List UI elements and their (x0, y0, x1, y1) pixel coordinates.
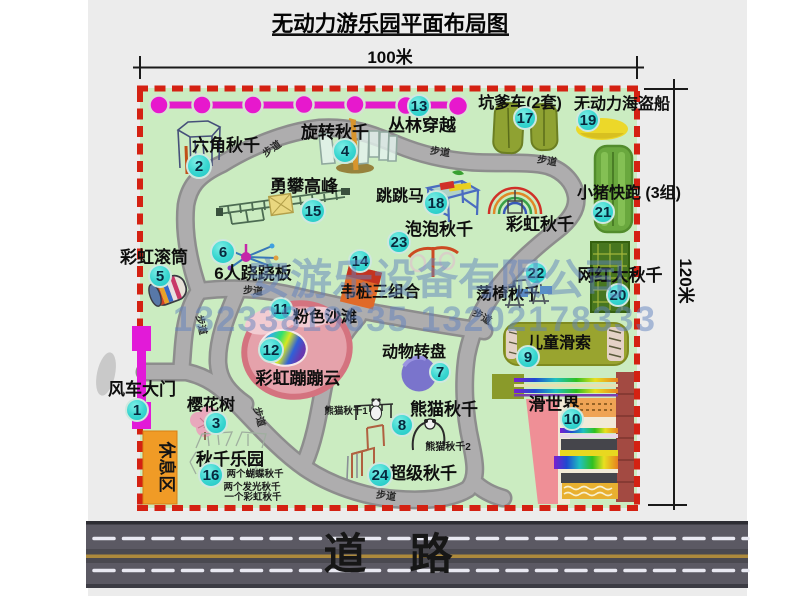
svg-text:两个蝴蝶秋千: 两个蝴蝶秋千 (226, 468, 284, 480)
svg-text:9: 9 (524, 349, 532, 366)
svg-text:风车大门: 风车大门 (108, 379, 176, 399)
svg-text:跳跳马: 跳跳马 (376, 186, 424, 205)
svg-text:动物转盘: 动物转盘 (382, 342, 446, 361)
svg-text:熊猫秋千2: 熊猫秋千2 (425, 440, 471, 453)
svg-text:路: 路 (410, 531, 454, 579)
svg-text:21: 21 (595, 204, 612, 221)
svg-text:18: 18 (428, 195, 445, 212)
svg-text:超级秋千: 超级秋千 (389, 463, 457, 483)
svg-text:13233819635 13202178333: 13233819635 13202178333 (173, 300, 657, 339)
svg-text:泡泡秋千: 泡泡秋千 (405, 219, 473, 239)
svg-text:丛林穿越: 丛林穿越 (388, 115, 457, 135)
svg-text:勇攀高峰: 勇攀高峰 (270, 176, 339, 196)
svg-text:旋转秋千: 旋转秋千 (300, 122, 369, 142)
svg-text:1: 1 (133, 402, 141, 419)
svg-text:10: 10 (564, 411, 581, 428)
svg-text:24: 24 (372, 467, 389, 484)
svg-text:13: 13 (411, 98, 428, 115)
svg-text:2: 2 (195, 158, 203, 175)
svg-text:100米: 100米 (367, 47, 413, 67)
svg-text:5: 5 (156, 268, 164, 285)
svg-text:无动力游乐园平面布局图: 无动力游乐园平面布局图 (272, 11, 509, 36)
svg-text:休息区: 休息区 (157, 441, 177, 493)
svg-text:一个彩虹秋千: 一个彩虹秋千 (224, 491, 282, 503)
svg-text:彩虹蹦蹦云: 彩虹蹦蹦云 (255, 368, 341, 388)
svg-text:19: 19 (580, 112, 597, 129)
svg-text:7: 7 (436, 364, 444, 381)
svg-text:4: 4 (341, 143, 350, 160)
svg-text:彩虹滚筒: 彩虹滚筒 (119, 247, 188, 267)
svg-text:17: 17 (517, 110, 534, 127)
svg-text:安游乐设备有限公司: 安游乐设备有限公司 (248, 256, 626, 303)
svg-text:彩虹秋千: 彩虹秋千 (505, 214, 574, 234)
svg-text:道: 道 (324, 531, 367, 579)
svg-text:15: 15 (305, 203, 322, 220)
svg-text:六角秋千: 六角秋千 (192, 135, 260, 155)
svg-text:8: 8 (398, 417, 406, 434)
svg-text:16: 16 (203, 467, 220, 484)
svg-text:樱花树: 樱花树 (187, 395, 235, 414)
svg-text:3: 3 (212, 415, 220, 432)
svg-text:熊猫秋千: 熊猫秋千 (410, 399, 478, 419)
svg-text:120米: 120米 (676, 258, 696, 304)
svg-text:小猪快跑 (3组): 小猪快跑 (3组) (577, 183, 681, 202)
svg-text:23: 23 (391, 234, 408, 251)
svg-text:12: 12 (263, 342, 280, 359)
svg-text:6: 6 (219, 244, 227, 261)
svg-text:熊猫秋千1: 熊猫秋千1 (324, 405, 368, 417)
